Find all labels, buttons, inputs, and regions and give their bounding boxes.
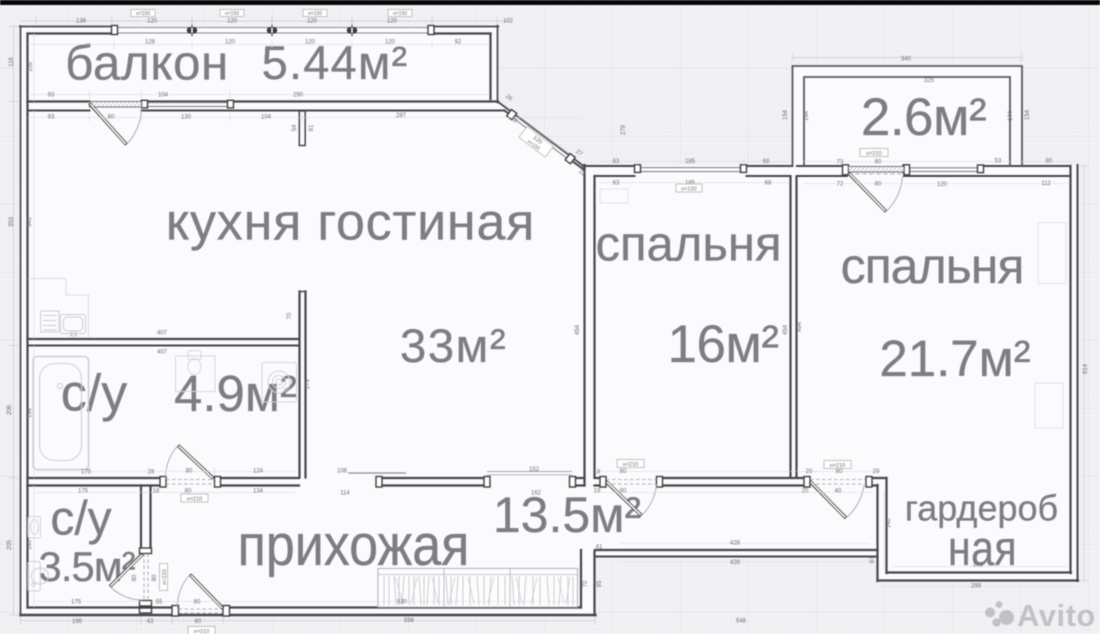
svg-text:29: 29 (873, 469, 880, 475)
svg-text:80: 80 (620, 489, 627, 495)
svg-text:28: 28 (148, 470, 155, 476)
svg-text:340: 340 (901, 57, 912, 63)
svg-text:н=150: н=150 (308, 11, 322, 17)
svg-text:80: 80 (620, 469, 627, 475)
svg-text:175: 175 (78, 489, 89, 495)
svg-text:104: 104 (158, 93, 169, 99)
svg-text:353: 353 (9, 216, 15, 227)
svg-text:152: 152 (529, 467, 540, 473)
svg-text:102: 102 (503, 19, 514, 25)
svg-text:спальня: спальня (596, 218, 782, 272)
svg-text:кухня гостиная: кухня гостиная (166, 194, 535, 252)
svg-text:598: 598 (404, 618, 415, 624)
svg-text:80: 80 (875, 182, 882, 188)
svg-text:80: 80 (1046, 159, 1053, 165)
svg-text:494: 494 (797, 321, 803, 332)
svg-text:93: 93 (48, 93, 55, 99)
svg-text:530: 530 (397, 600, 408, 606)
svg-text:80: 80 (875, 160, 882, 166)
svg-text:407: 407 (157, 350, 168, 356)
svg-text:63: 63 (613, 159, 620, 165)
svg-text:120: 120 (385, 40, 396, 46)
svg-text:279: 279 (973, 563, 984, 569)
svg-text:144: 144 (804, 110, 810, 121)
svg-text:н=210: н=210 (162, 569, 168, 584)
svg-text:95: 95 (597, 580, 603, 587)
svg-text:87: 87 (870, 556, 876, 563)
svg-text:55: 55 (156, 600, 163, 606)
svg-text:21.7м²: 21.7м² (879, 330, 1030, 387)
svg-text:116: 116 (9, 57, 15, 67)
svg-text:206: 206 (7, 404, 13, 415)
svg-text:454: 454 (575, 324, 581, 335)
svg-text:279: 279 (621, 124, 627, 135)
svg-text:н=150: н=150 (681, 186, 696, 192)
svg-text:спальня: спальня (841, 238, 1024, 294)
svg-text:н=150: н=150 (393, 11, 407, 17)
svg-text:18: 18 (153, 489, 160, 495)
svg-text:н=210: н=210 (623, 462, 638, 468)
svg-text:299: 299 (971, 584, 982, 590)
svg-text:205: 205 (7, 539, 13, 550)
svg-text:93: 93 (48, 115, 55, 121)
svg-text:Avito: Avito (1017, 598, 1096, 633)
svg-text:4.9м²: 4.9м² (174, 365, 297, 422)
svg-text:68: 68 (765, 181, 772, 187)
svg-text:454: 454 (783, 324, 789, 335)
svg-text:40: 40 (835, 489, 842, 495)
svg-text:134: 134 (253, 489, 264, 495)
svg-text:прихожая: прихожая (238, 512, 470, 577)
svg-text:120: 120 (937, 182, 948, 188)
svg-text:120: 120 (225, 40, 236, 46)
svg-text:63: 63 (613, 181, 620, 187)
svg-text:80: 80 (195, 619, 202, 625)
svg-text:106: 106 (337, 469, 348, 475)
svg-text:105: 105 (28, 61, 34, 72)
svg-text:120: 120 (387, 19, 398, 25)
svg-text:73: 73 (837, 160, 844, 166)
svg-text:80: 80 (836, 469, 843, 475)
svg-text:548: 548 (736, 619, 747, 625)
svg-text:614: 614 (1083, 363, 1089, 374)
svg-text:н=210: н=210 (187, 496, 202, 502)
svg-text:20: 20 (802, 489, 809, 495)
svg-text:185: 185 (685, 159, 696, 165)
svg-text:33м²: 33м² (400, 320, 507, 373)
svg-text:130: 130 (181, 115, 192, 121)
svg-text:с/у: с/у (50, 493, 111, 546)
svg-text:с/у: с/у (61, 365, 127, 423)
svg-text:120: 120 (227, 19, 238, 25)
svg-text:407: 407 (157, 331, 168, 337)
svg-text:279: 279 (305, 378, 311, 389)
svg-text:41: 41 (596, 545, 603, 551)
svg-text:80: 80 (194, 600, 201, 606)
svg-text:2.6м²: 2.6м² (861, 88, 986, 147)
svg-text:80: 80 (132, 574, 138, 581)
svg-text:154: 154 (1025, 109, 1031, 120)
svg-text:72: 72 (837, 182, 844, 188)
svg-text:3.5м²: 3.5м² (38, 543, 135, 590)
svg-text:162: 162 (531, 491, 542, 497)
svg-text:114: 114 (340, 491, 350, 497)
svg-text:428: 428 (730, 560, 741, 566)
svg-text:92: 92 (455, 40, 462, 46)
svg-text:43: 43 (147, 619, 154, 625)
svg-text:175: 175 (81, 470, 92, 476)
svg-text:н=210: н=210 (194, 629, 209, 634)
svg-text:428: 428 (730, 541, 741, 547)
svg-text:53: 53 (995, 159, 1002, 165)
svg-text:142: 142 (886, 517, 892, 528)
svg-text:136: 136 (76, 19, 87, 25)
svg-text:80: 80 (108, 115, 115, 121)
svg-text:н=150: н=150 (136, 11, 150, 17)
svg-text:16м²: 16м² (667, 315, 778, 374)
svg-text:325: 325 (924, 78, 935, 84)
svg-text:18: 18 (594, 470, 601, 476)
svg-text:185: 185 (27, 539, 33, 550)
svg-text:104: 104 (261, 115, 272, 121)
svg-text:н=210: н=210 (866, 151, 881, 157)
svg-text:198: 198 (27, 407, 33, 418)
svg-text:120: 120 (147, 19, 158, 25)
svg-text:120: 120 (307, 19, 318, 25)
svg-text:144: 144 (1008, 110, 1014, 121)
svg-text:н=210: н=210 (830, 463, 845, 469)
svg-text:154: 154 (783, 109, 789, 120)
svg-text:н=150: н=150 (225, 11, 239, 17)
svg-text:175: 175 (71, 600, 82, 606)
svg-text:68: 68 (763, 159, 770, 165)
svg-text:20: 20 (806, 469, 813, 475)
svg-text:196: 196 (72, 619, 83, 625)
svg-text:19: 19 (594, 489, 601, 495)
svg-text:341: 341 (27, 216, 33, 227)
svg-text:70: 70 (287, 312, 293, 319)
svg-text:287: 287 (396, 113, 407, 119)
svg-text:80: 80 (186, 469, 193, 475)
svg-text:290: 290 (293, 93, 304, 99)
svg-text:112: 112 (1041, 181, 1051, 187)
svg-text:54: 54 (292, 124, 298, 131)
svg-text:80: 80 (152, 574, 158, 581)
svg-text:81: 81 (309, 124, 315, 131)
svg-text:120: 120 (305, 40, 316, 46)
svg-text:80: 80 (185, 489, 192, 495)
svg-text:124: 124 (253, 469, 264, 475)
svg-text:70: 70 (583, 580, 589, 587)
svg-text:128: 128 (145, 40, 156, 46)
